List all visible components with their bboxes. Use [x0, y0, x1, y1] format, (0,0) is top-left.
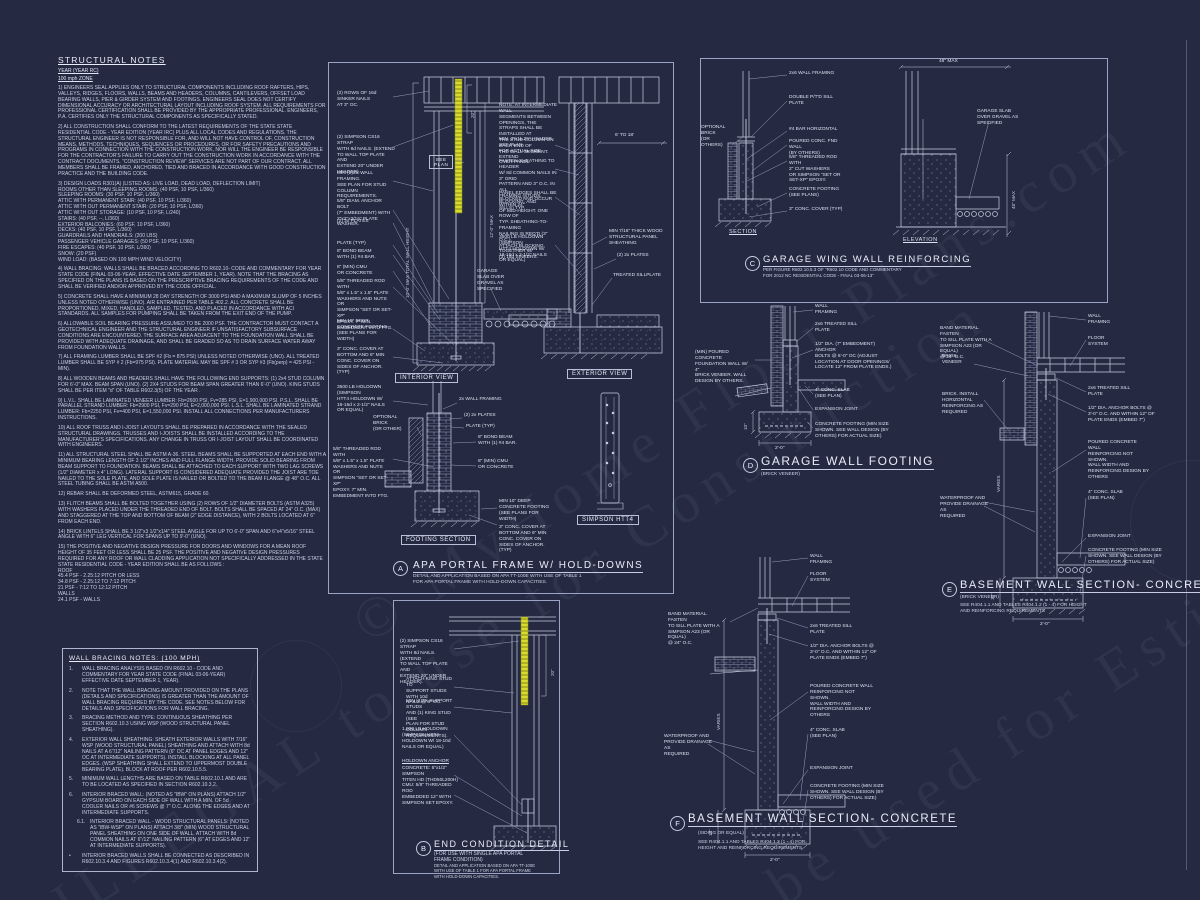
note-paragraph: 10) ALL ROOF TRUSS AND I-JOIST LAYOUTS S… [58, 426, 326, 449]
bracing-item-text: INTERIOR BRACED WALL: (NOTED AS "IBW" ON… [82, 792, 251, 816]
detail-b-end-condition: (2) SIMPSON CS16 STRAP WITH 8d NAILS. (E… [393, 600, 560, 874]
callout-min-framing: MIN (2)2X WALL FRAMING. SEE PLAN FOR STU… [337, 171, 395, 200]
bracing-item-text: INTERIOR BRACED WALL - WOOD STRUCTURAL P… [90, 819, 251, 849]
dim-10: 10" [743, 423, 748, 430]
callout-2x6-sill: 2x6 TREATED SILL PLATE [1088, 386, 1148, 398]
detail-a-subtitle: DETAIL AND APPLICATION BASED ON APA TT-1… [413, 574, 582, 586]
detail-f-subtitle2: SEE R404.1.1 AND TABLES R404.1.2 (1 - 4)… [698, 840, 805, 852]
callout-sheathing-716: MIN 7/16" THICK WOOD STRUCTURAL PANEL SH… [609, 229, 665, 247]
detail-e-title: BASEMENT WALL SECTION- CONCRETE [960, 579, 1200, 593]
callout-brick-veneer: BRICK VENEER [942, 354, 982, 366]
detail-b-subtitle1: (FOR USE WITH SINGLE APA PORTAL FRAME CO… [434, 851, 523, 864]
callout-cmu: 8" (MIN) CMU OR CONCRETE [478, 459, 532, 471]
detail-a-apa-portal-frame: (2) ROWS OF 16d SINKER NAILS AT 3" OC. (… [328, 62, 674, 594]
bracing-item-number: 4. [69, 737, 82, 773]
callout-treated-sill: TREATED SILLPLATE [613, 273, 669, 279]
bracing-item-number: 1. [69, 666, 82, 684]
dim-12ft-max: 12'-0" MAX [489, 215, 494, 238]
simpson-htt4-label: SIMPSON HTT4 [577, 515, 639, 525]
note-paragraph: 9) L.V.L. SHALL BE LAMINATED VENEER LUMB… [58, 399, 326, 422]
note-paragraph: 8) ALL WOODEN BEAMS AND HEADERS SHALL HA… [58, 377, 326, 395]
callout-concrete-cover: 3" CONC. COVER AT BOTTOM AND 6" MIN CONC… [499, 525, 555, 554]
note-paragraph: 1) ENGINEERS SEAL APPLIES ONLY TO STRUCT… [58, 86, 326, 121]
detail-letter-b: B [416, 841, 431, 856]
callout-cover-typ: 3" CONC. COVER (TYP) [789, 207, 844, 213]
see-plan-tag: SEE PLAN [429, 155, 453, 169]
callout-conc-slab: 4" CONC. SLAB (SEE PLAN) [1088, 490, 1142, 502]
callout-double-sill: DOUBLE P/T'D SILL PLATE [789, 95, 844, 107]
detail-letter-e: E [942, 582, 957, 597]
note-paragraph: 12) REBAR SHALL BE DEFORMED STEEL, ASTM6… [58, 492, 326, 498]
detail-c-title: GARAGE WING WALL REINFORCING [763, 254, 971, 267]
dim-48-max-right: 48" MAX [1011, 191, 1016, 209]
bracing-item-text: BRACING METHOD AND TYPE: CONTINUOUS SHEA… [82, 715, 251, 733]
blueprint-sheet: © MyHome Floor Plans.com ILLEGAL to use … [0, 0, 1200, 900]
detail-f-title: BASEMENT WALL SECTION- CONCRETE [688, 813, 957, 827]
callout-waterproof: WATERPROOF AND PROVIDE DRAINAGE AS REQUI… [940, 496, 992, 519]
note-paragraph: 5) CONCRETE SHALL HAVE A MINIMUM 28 DAY … [58, 295, 326, 318]
callout-conc-slab: 4" CONC. SLAB (SEE PLAN) [810, 728, 864, 740]
detail-f-subtitle1: (SIDING OR EQUAL) [698, 831, 744, 837]
section-label: SECTION [729, 229, 757, 236]
note-paragraph: 13) FLITCH BEAMS SHALL BE BOLTED TOGETHE… [58, 502, 326, 525]
dim-2ft: 2'-0" [775, 446, 785, 452]
detail-a-title: APA PORTAL FRAME W/ HOLD-DOWNS [413, 560, 643, 573]
detail-b-title: END CONDITION DETAIL [434, 839, 569, 851]
bracing-item-number: 2. [69, 688, 82, 712]
bracing-item-text: WALL BRACING ANALYSIS BASED ON R602.10 -… [82, 666, 251, 684]
footing-section-label: FOOTING SECTION [401, 535, 476, 545]
structural-notes-sub2: 100 mph ZONE [58, 76, 326, 82]
callout-garage-slab: GARAGE SLAB OVER GRAVEL AS SPECIFIED [477, 269, 517, 292]
callout-poured-wall: POURED CONCRETE WALL REINFORCING NOT SHO… [1088, 440, 1150, 481]
detail-f-basement-wall-siding: WALL FRAMING FLOOR SYSTEM BAND MATERIAL.… [660, 552, 926, 887]
bracing-item-number: • [69, 853, 82, 865]
callout-2x6-sill: 2x6 TREATED SILL PLATE [810, 624, 870, 636]
callout-poured-fnd: POURED CONC. FND WALL (BY OTHERS) [789, 139, 849, 157]
callout-holdown-3500: 3500 LB HOLDOWN (SIMPSON HTT4 HOLDOWN W/… [337, 385, 393, 414]
bracing-item-number: 6.1. [77, 819, 90, 849]
dim-varies: VARIES [716, 713, 721, 730]
bracing-item-text: MINIMUM WALL LENGTHS ARE BASED ON TABLE … [82, 776, 251, 788]
note-paragraph: 15) THE POSITIVE AND NEGATIVE DESIGN PRE… [58, 545, 326, 603]
dim-strap-20: 20" [550, 669, 555, 676]
bracing-item-text: INTERIOR BRACED WALLS SHALL BE CONNECTED… [82, 853, 251, 865]
callout-wall-framing: WALL FRAMING [810, 554, 860, 566]
exterior-view-label: EXTERIOR VIEW [567, 369, 632, 379]
callout-bond-beam: 8" BOND BEAM WITH (1) #4 BAR. [337, 249, 395, 261]
note-paragraph: 6) ALLOWABLE SOIL BEARING PRESSURE ASSUM… [58, 322, 326, 351]
elevation-label: ELEVATION [903, 237, 938, 244]
callout-poured-wall: POURED CONCRETE WALL REINFORCING NOT SHO… [810, 684, 874, 719]
callout-footing-min: CONCRETE FOOTING (MIN SIZE SHOWN. SEE WA… [1088, 548, 1164, 566]
interior-view-label: INTERIOR VIEW [395, 373, 458, 383]
dim-strap-20: 20" [470, 111, 475, 118]
bracing-item-text: NOTE THAT THE WALL BRACING AMOUNT PROVID… [82, 688, 251, 712]
callout-anchor-bolts: 1/2" DIA. ANCHOR BOLTS @ 3'-0" O.C. AND … [810, 644, 884, 662]
detail-e-subtitle2: SEE R404.1.1 AND TABLES R404.1.2 (1 - 4)… [960, 603, 1087, 615]
detail-letter-f: F [670, 816, 685, 831]
callout-brick-horizontal: BRICK. INSTALL HORIZONTAL REINFORCING AS… [942, 392, 1000, 415]
callout-2x6-framing: 2x6 WALL FRAMING [789, 71, 849, 77]
detail-d-subtitle: (BRICK VENEER) [761, 472, 800, 478]
wall-bracing-notes: WALL BRACING NOTES: (100 MPH) 1.WALL BRA… [62, 648, 258, 872]
callout-bond-beam: 8" BOND BEAM WITH (1) #4 BAR. [478, 435, 532, 447]
callout-expansion-joint: EXPANSION JOINT [810, 766, 870, 772]
callout-garage-slab: GARAGE SLAB OVER GRAVEL AS SPECIFIED [977, 109, 1022, 127]
detail-letter-a: A [393, 561, 408, 576]
callout-optional-brick: OPTIONAL BRICK (OR OTHER) [373, 415, 413, 433]
structural-notes-title: STRUCTURAL NOTES [58, 55, 326, 65]
detail-letter-c: C [745, 256, 760, 271]
callout-floor-system: FLOOR SYSTEM [1088, 336, 1138, 348]
callout-2x-plates: (2) 2x PLATES [617, 253, 669, 259]
dim-width: 6' TO 18' [615, 133, 655, 139]
detail-d-title: GARAGE WALL FOOTING [761, 454, 934, 470]
bracing-item-text: EXTERIOR WALL SHEATHING: SHEATH EXTERIOR… [82, 737, 251, 773]
callout-footing-depth: MIN 10" DEEP CONCRETE FOOTING (SEE PLANS… [499, 499, 555, 522]
sheet-edge-line [1186, 40, 1187, 870]
callout-wall-framing: WALL FRAMING [1088, 314, 1138, 326]
callout-wall-framing: WALL FRAMING [815, 304, 875, 316]
note-paragraph: 3) DESIGN LOADS R301(A) (LISTED AS: LIVE… [58, 182, 326, 264]
detail-c-garage-wing-wall: 2x6 WALL FRAMING DOUBLE P/T'D SILL PLATE… [700, 58, 1108, 303]
callout-expansion-joint: EXPANSION JOINT [815, 407, 875, 413]
callout-threaded-rod-cut: 5/8" THREADED ROD WITH 2" CUT WASHERS OR… [789, 155, 847, 184]
detail-e-subtitle1: (BRICK VENEER) [960, 595, 999, 601]
callout-sinker-nails: (2) ROWS OF 16d SINKER NAILS AT 3" OC. [337, 91, 393, 109]
detail-d-garage-wall-footing: WALL FRAMING 2x6 TREATED SILL PLATE 1/2"… [695, 300, 930, 485]
callout-conc-slab: 4" CONC. SLAB (SEE PLAN) [815, 388, 875, 400]
callout-anchor-concrete: CONCRETE: 5"x1/2" SIMPSON TITEN HD (THD5… [402, 766, 458, 784]
bracing-item-number: 5. [69, 776, 82, 788]
callout-2x6-sill: 2x6 TREATED SILL PLATE [815, 322, 875, 334]
callout-footing-min: CONCRETE FOOTING (MIN SIZE SHOWN. SEE WA… [815, 422, 891, 440]
bracing-item-number: 6. [69, 792, 82, 816]
callout-anchor-bolts-6ft: 1/2" DIA. (7" EMBEDMENT) ANCHOR BOLTS @ … [815, 342, 893, 371]
structural-notes-sub1: YEAR (YEAR RC) [58, 68, 326, 74]
note-paragraph: 4) WALL BRACING: WALLS SHALL BE BRACED A… [58, 267, 326, 290]
callout-cmu: 8" (MIN) CMU OR CONCRETE [337, 265, 395, 277]
callout-anchor-bolts: 1/2" DIA. ANCHOR BOLTS @ 3'-0" O.C. AND … [1088, 406, 1160, 424]
dim-48-max-top: 48" MAX [939, 59, 958, 65]
callout-anchor-cmu: CMU: 5/8" THREADED ROD EMBEDDED 12" WITH… [402, 783, 454, 806]
callout-holdown-1000: 1,000 LB HOLDOWN (SIMPSON HTT4 HOLDOWN W… [402, 727, 452, 750]
callout-plate: PLATE (TYP) [466, 424, 520, 430]
callout-poured-fnd-brick: (MIN) POURED CONCRETE FOUNDATION WALL W/… [695, 350, 753, 385]
callout-2x-plates: (2) 2x PLATES [464, 413, 518, 419]
note-paragraph: 11) ALL STRUCTURAL STEEL SHALL BE ASTM A… [58, 453, 326, 488]
dim-varies: VARIES [996, 475, 1001, 492]
callout-optional-brick: OPTIONAL BRICK (OR OTHERS) [701, 125, 727, 148]
callout-cs16-strap: (2) SIMPSON CS16 STRAP WITH 8d NAILS. (E… [337, 135, 395, 176]
note-paragraph: 2) ALL CONSTRUCTION SHALL CONFORM TO THE… [58, 125, 326, 178]
callout-footing-see-plans: CONCRETE FOOTING (SEE PLANS) [789, 187, 844, 199]
detail-e-basement-wall-brick: BAND MATERIAL. FASTEN TO SILL PLATE WITH… [940, 300, 1186, 638]
callout-2x-plates: (2) 2x PLATES [337, 219, 395, 225]
callout-4bar-horizontal: #4 BAR HORIZONTAL [789, 127, 849, 133]
callout-footing-min: CONCRETE FOOTING (MIN SIZE SHOWN. SEE WA… [810, 784, 888, 802]
detail-c-subtitle: PER FIGURE R602.10.5.3 OF "R602.10 CODE … [763, 267, 902, 278]
callout-band-material: BAND MATERIAL. FASTEN TO SILL PLATE WITH… [668, 612, 726, 647]
callout-floor-system: FLOOR SYSTEM [810, 572, 860, 584]
callout-concrete-cover: 3" CONC. COVER AT BOTTOM AND 6" MIN CONC… [337, 347, 393, 376]
callout-holdown-3500: 3500 LB HOLDOWN (SIMPSON HTT4 HOLDOWN W/… [499, 235, 559, 264]
callout-footing-depth: MIN 10" DEEP CONCRETE FOOTING (SEE PLANS… [337, 319, 393, 342]
callout-threaded-rod: 5/8" THREADED ROD WITH 5/8" x 1.5" x 1.5… [333, 447, 391, 500]
callout-expansion-joint: EXPANSION JOINT [1088, 534, 1148, 540]
detail-letter-d: D [743, 458, 758, 473]
watermark-arc [250, 640, 342, 732]
note-paragraph: 7) ALL FRAMING LUMBER SHALL BE SPF #2 (F… [58, 355, 326, 373]
note-paragraph: 14) BRICK LINTELS SHALL BE 3 1/2"x3 1/2"… [58, 530, 326, 542]
callout-waterproof: WATERPROOF AND PROVIDE DRAINAGE AS REQUI… [664, 734, 718, 757]
callout-plate: PLATE (TYP) [337, 241, 395, 247]
bracing-item-number: 3. [69, 715, 82, 733]
detail-b-subtitle2: DETAIL AND APPLICATION BASED ON APA TT-1… [434, 863, 535, 879]
wall-bracing-title: WALL BRACING NOTES: (100 MPH) [69, 655, 251, 662]
callout-2x-wall-framing: 2x WALL FRAMING [459, 397, 513, 403]
dim-2ft: 2'-0" [1040, 622, 1050, 628]
dim-2ft: 2'-0" [770, 858, 780, 864]
callout-holdown-anchor-heading: HOLDOWN ANCHOR [402, 759, 458, 765]
dim-total-wall-height: 10'-0" MAX TOTAL WALL HEIGHT [405, 228, 410, 298]
structural-notes: STRUCTURAL NOTES YEAR (YEAR RC) 100 mph … [58, 55, 326, 604]
